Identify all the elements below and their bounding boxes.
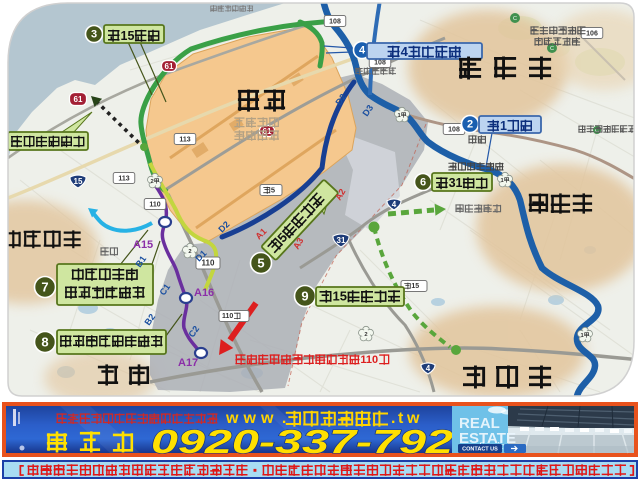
svg-text:108: 108 [448, 127, 460, 134]
svg-text:1甲: 1甲 [580, 331, 589, 339]
svg-text:106: 106 [586, 31, 598, 38]
svg-text:3: 3 [91, 29, 97, 41]
svg-text:108: 108 [329, 19, 341, 26]
svg-text:2: 2 [364, 332, 367, 338]
svg-text:31: 31 [337, 236, 346, 245]
svg-text:110: 110 [222, 313, 233, 320]
svg-text:C: C [513, 16, 517, 22]
svg-text:2: 2 [467, 119, 473, 131]
svg-text:CONTACT US: CONTACT US [462, 447, 498, 453]
svg-text:2: 2 [188, 249, 191, 255]
svg-text:A16: A16 [194, 287, 214, 299]
svg-text:A17: A17 [178, 357, 198, 369]
svg-text:108: 108 [374, 60, 386, 67]
svg-text:4: 4 [401, 44, 409, 59]
svg-text:113: 113 [179, 137, 190, 144]
svg-text:4: 4 [426, 364, 431, 373]
svg-text:0920-337-792: 0920-337-792 [151, 423, 454, 460]
svg-text:113: 113 [118, 176, 129, 183]
svg-text:9: 9 [301, 288, 308, 303]
svg-text:61: 61 [165, 62, 174, 71]
svg-text:8: 8 [41, 334, 48, 349]
svg-text:5: 5 [257, 255, 264, 270]
svg-text:A15: A15 [133, 239, 153, 251]
svg-text:31: 31 [449, 176, 463, 190]
svg-text:5: 5 [271, 186, 275, 195]
svg-text:1: 1 [500, 119, 507, 133]
svg-text:2甲: 2甲 [150, 177, 159, 185]
svg-text:15: 15 [411, 283, 419, 290]
svg-text:1甲: 1甲 [397, 111, 406, 119]
svg-text:110: 110 [149, 202, 160, 209]
svg-text:6: 6 [420, 177, 426, 189]
svg-text:4: 4 [359, 45, 366, 57]
svg-text:C: C [550, 46, 554, 52]
svg-text:1甲: 1甲 [500, 176, 509, 184]
svg-text:7: 7 [41, 279, 48, 294]
svg-text:15: 15 [121, 29, 135, 43]
svg-text:4: 4 [392, 200, 397, 209]
svg-text:15: 15 [74, 177, 83, 186]
svg-text:15: 15 [333, 289, 347, 304]
svg-text:61: 61 [74, 95, 83, 104]
svg-text:110: 110 [360, 354, 378, 366]
